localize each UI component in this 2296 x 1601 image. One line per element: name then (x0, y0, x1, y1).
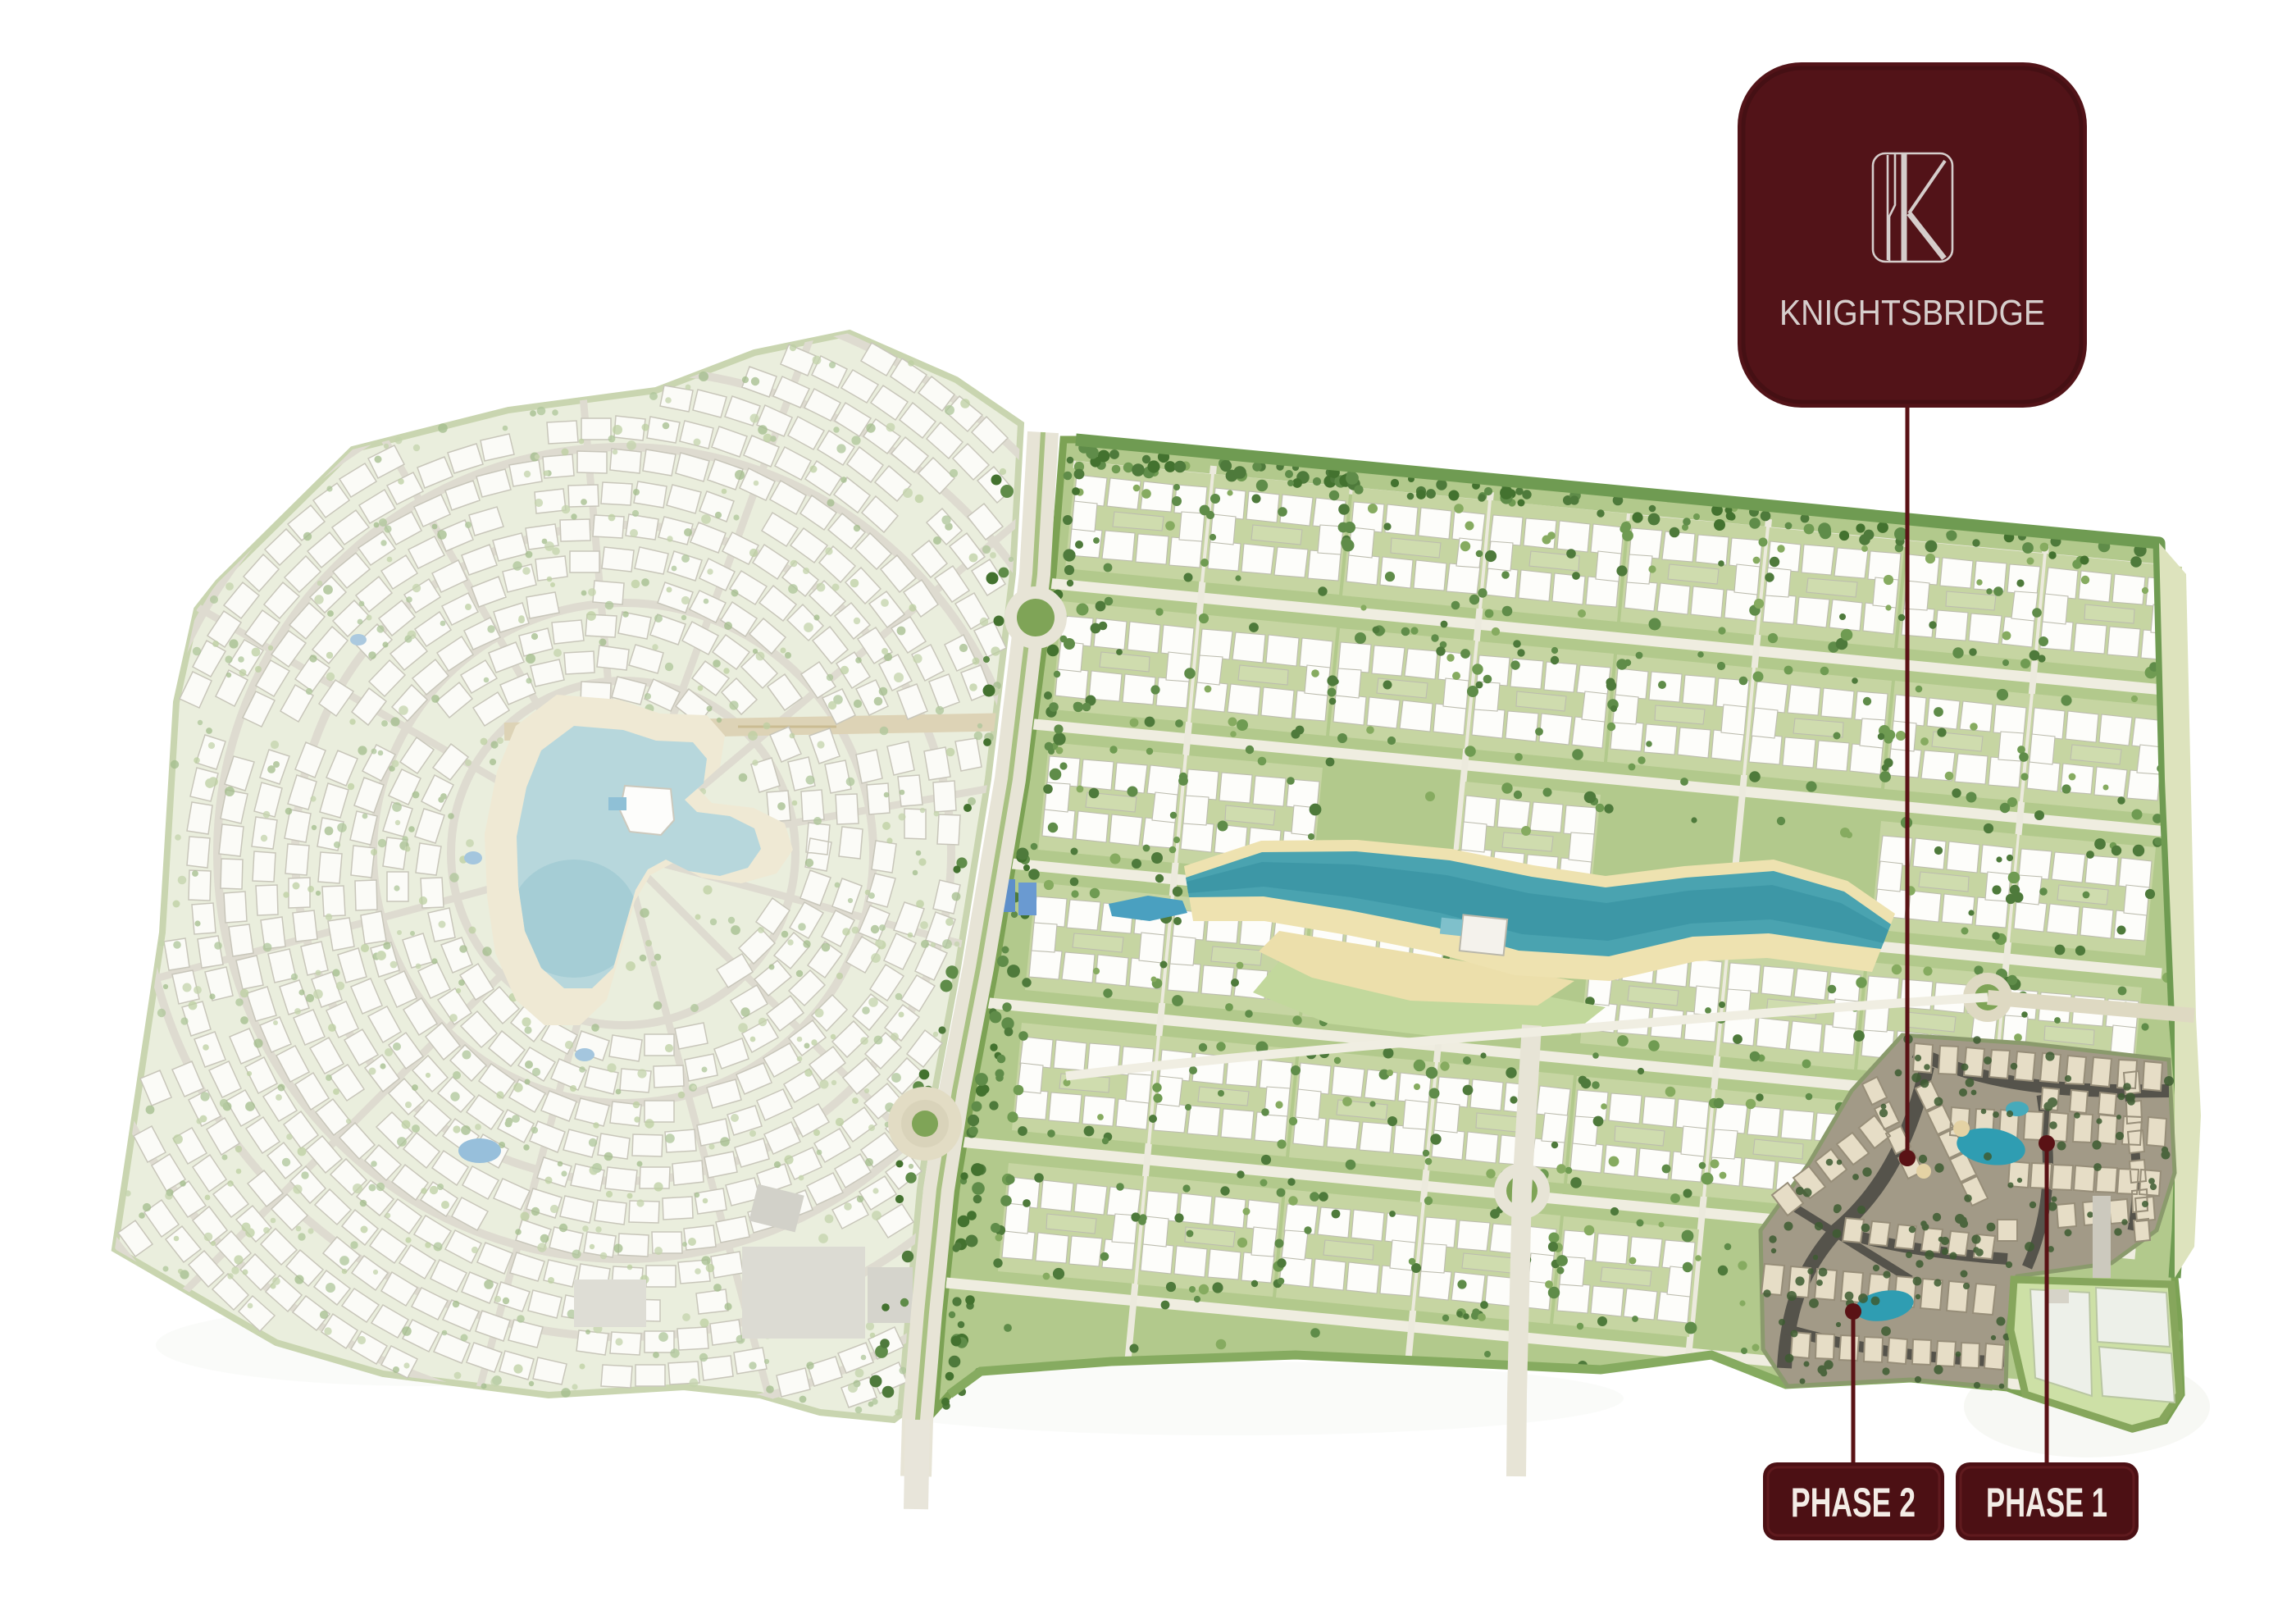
svg-text:KNIGHTSBRIDGE: KNIGHTSBRIDGE (1779, 293, 2045, 333)
svg-text:PHASE 2: PHASE 2 (1791, 1480, 1916, 1526)
svg-text:PHASE 1: PHASE 1 (1986, 1480, 2107, 1526)
